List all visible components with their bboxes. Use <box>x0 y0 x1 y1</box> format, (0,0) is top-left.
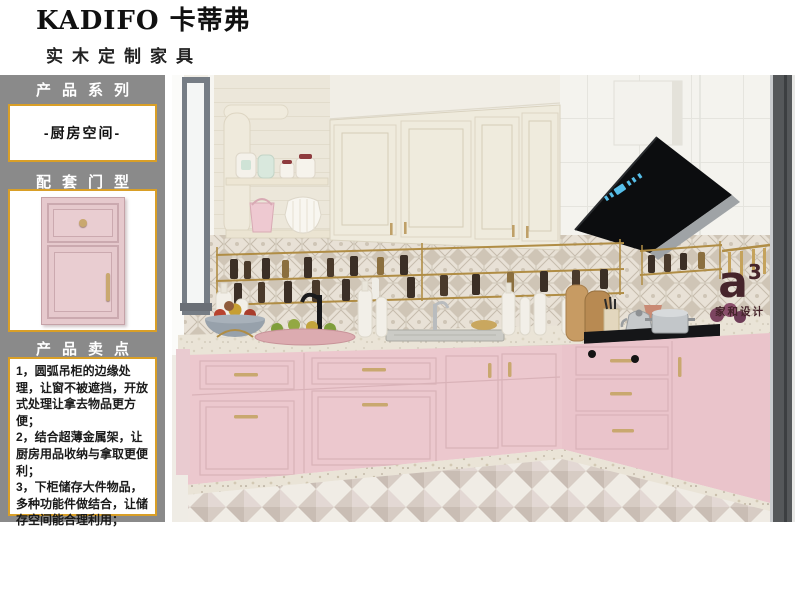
selling-point-3: 3，下柜储存大件物品，多种功能件做结合，让储存空间能合理利用； <box>16 479 149 529</box>
brand-logo: KADIFO 卡蒂弗 <box>36 4 336 38</box>
page: KADIFO 卡蒂弗 实木定制家具 产品系列 -厨房空间- 配套门型 产品卖点 … <box>0 0 800 600</box>
door-type-box <box>8 189 157 332</box>
knob-left <box>588 350 596 358</box>
door-handle <box>106 273 110 301</box>
watermark-letter: a <box>718 257 748 308</box>
selling-point-2: 2，结合超薄金属架，让厨房用品收纳与拿取更便利； <box>16 429 149 479</box>
section-title-product-series: 产品系列 <box>0 79 165 100</box>
glass-door-frame <box>770 75 795 522</box>
white-vase <box>285 197 321 233</box>
kitchen-render <box>172 75 795 522</box>
watermark-caption: 家和设计 <box>715 307 765 318</box>
header: KADIFO 卡蒂弗 实木定制家具 <box>36 4 336 67</box>
hood-duct <box>614 81 682 145</box>
window <box>172 75 212 357</box>
sink <box>386 330 504 341</box>
pink-bucket <box>250 199 274 232</box>
pink-side-panel <box>176 349 190 475</box>
upper-cabinets <box>330 105 560 250</box>
knob-right <box>631 355 639 363</box>
door-thumb-drawer <box>47 203 119 243</box>
sidebar: 产品系列 -厨房空间- 配套门型 产品卖点 1，圆弧吊柜的边缘处理，让窗不被遮挡… <box>0 75 165 522</box>
drawer-knob <box>79 219 87 227</box>
gold-bowl <box>471 320 497 330</box>
designer-watermark: a3 家和设计 <box>715 261 765 318</box>
section-title-selling-points: 产品卖点 <box>0 338 165 359</box>
series-value: -厨房空间- <box>44 123 121 143</box>
cabinet-door-thumbnail <box>41 197 125 325</box>
product-series-box: -厨房空间- <box>8 104 157 162</box>
selling-point-1: 1，圆弧吊柜的边缘处理，让窗不被遮挡，开放式处理让拿去物品更方便； <box>16 363 149 429</box>
cooking-pot <box>645 309 695 333</box>
selling-points-box: 1，圆弧吊柜的边缘处理，让窗不被遮挡，开放式处理让拿去物品更方便； 2，结合超薄… <box>8 357 157 516</box>
watermark-sup: 3 <box>748 260 762 284</box>
kitchen-photo: a3 家和设计 <box>172 75 795 522</box>
brand-subtitle: 实木定制家具 <box>36 42 336 67</box>
door-thumb-panel <box>47 245 119 319</box>
shelf-board-top <box>226 178 328 185</box>
shelf-board-bottom <box>226 230 332 238</box>
window-sill <box>180 303 212 311</box>
